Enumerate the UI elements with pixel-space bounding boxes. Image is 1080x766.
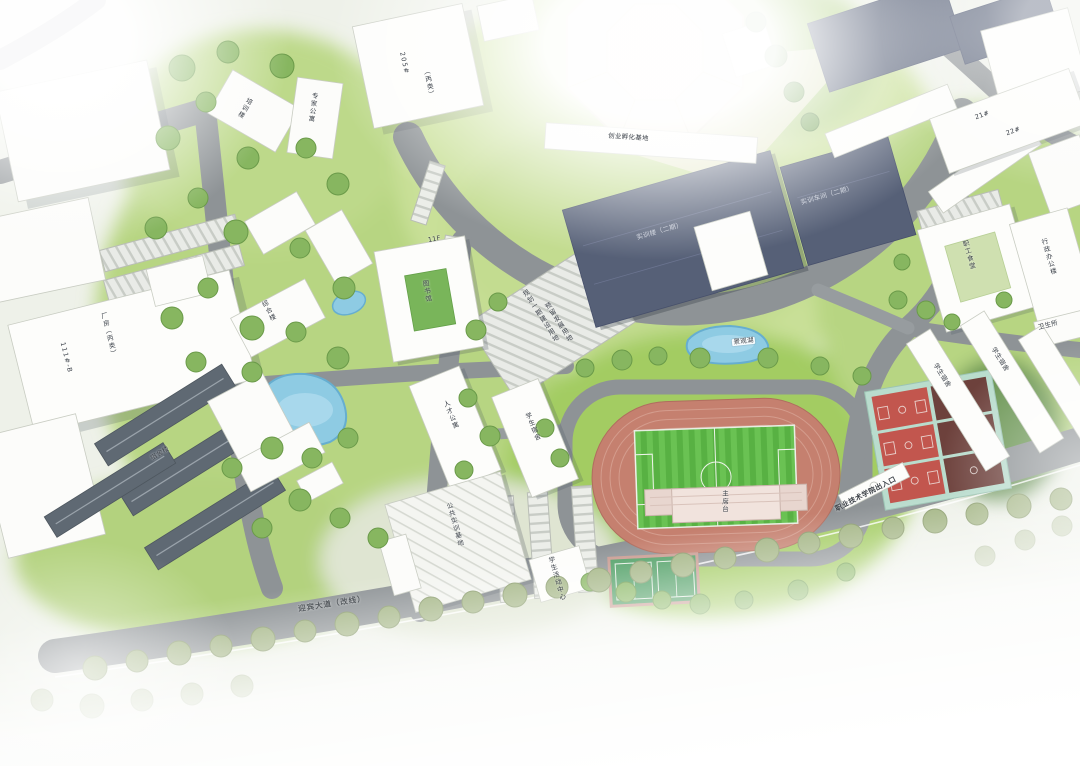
campus-plan-canvas: 厂房（丙类） 111#-B 205# （丙类） 宿舍楼 综合楼 培训楼 专家公寓… — [0, 0, 1080, 766]
campus-map — [0, 0, 1080, 766]
running-track — [589, 396, 842, 557]
label-rostrum: 主席台 — [720, 490, 727, 513]
